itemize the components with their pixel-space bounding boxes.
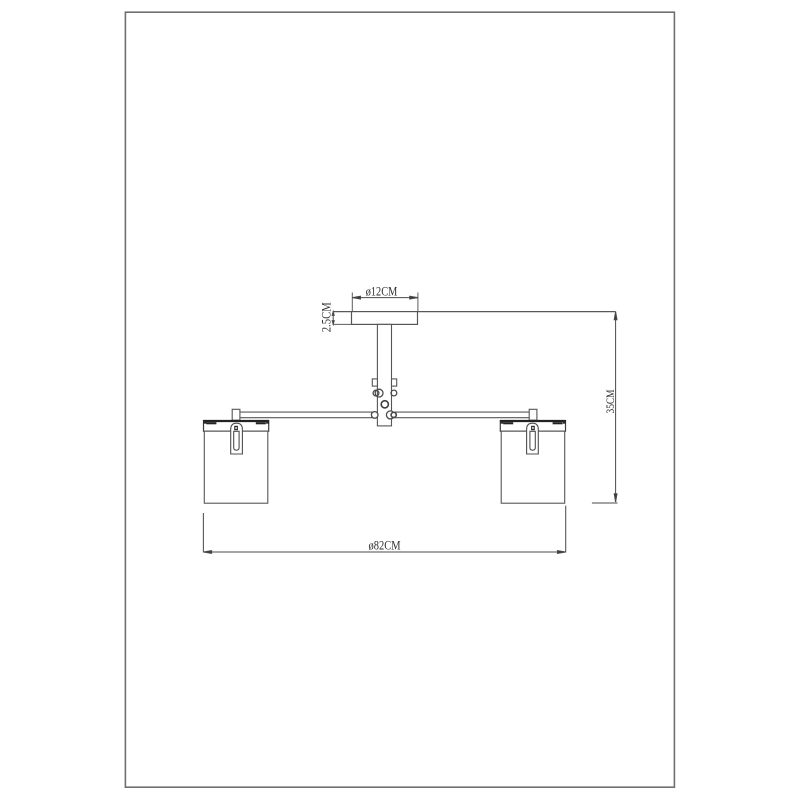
svg-text:ø12CM: ø12CM	[366, 285, 398, 299]
svg-text:ø82CM: ø82CM	[369, 539, 401, 553]
svg-text:2.5CM: 2.5CM	[320, 302, 334, 332]
svg-text:35CM: 35CM	[603, 389, 617, 413]
